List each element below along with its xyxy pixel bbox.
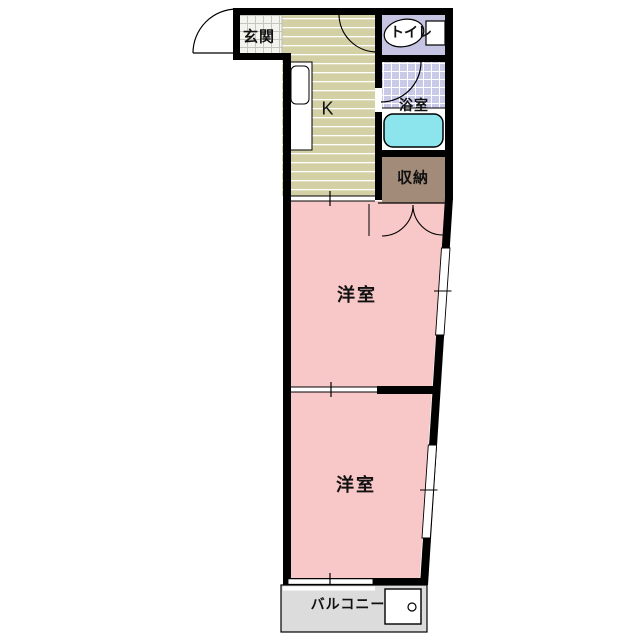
wall-left — [283, 53, 291, 585]
bathroom-label: 浴室 — [399, 95, 429, 115]
floorplan-canvas: 玄関 トイレ K 浴室 収納 洋室 洋室 バルコニー — [0, 0, 640, 640]
wall-bath-storage — [375, 150, 453, 157]
entrance-door-arc — [193, 9, 237, 53]
floorplan-drawing — [0, 0, 640, 640]
kitchen-label: K — [321, 99, 334, 120]
bath-door-opening — [375, 88, 382, 112]
wall-top — [233, 8, 453, 15]
wall-room-divider — [377, 386, 436, 394]
rooms-opening — [291, 387, 377, 392]
toilet-label: トイレ — [390, 22, 432, 42]
washer-drain-icon — [408, 603, 416, 611]
storage-label: 収納 — [397, 167, 429, 188]
balcony-label: バルコニー — [311, 594, 386, 614]
bathtub-icon — [384, 114, 443, 147]
kitchen-room-opening — [291, 196, 375, 201]
balcony-threshold — [283, 587, 375, 591]
wall-genkan-bottom — [233, 53, 291, 60]
wall-genkan-left — [233, 8, 240, 60]
western-room-1-label: 洋室 — [337, 281, 377, 307]
western-room-2-label: 洋室 — [336, 471, 376, 497]
genkan-label: 玄関 — [243, 26, 275, 47]
wall-right-upper — [445, 8, 453, 200]
wall-toilet-bath — [375, 55, 453, 62]
kitchen-sink-icon — [291, 66, 309, 104]
